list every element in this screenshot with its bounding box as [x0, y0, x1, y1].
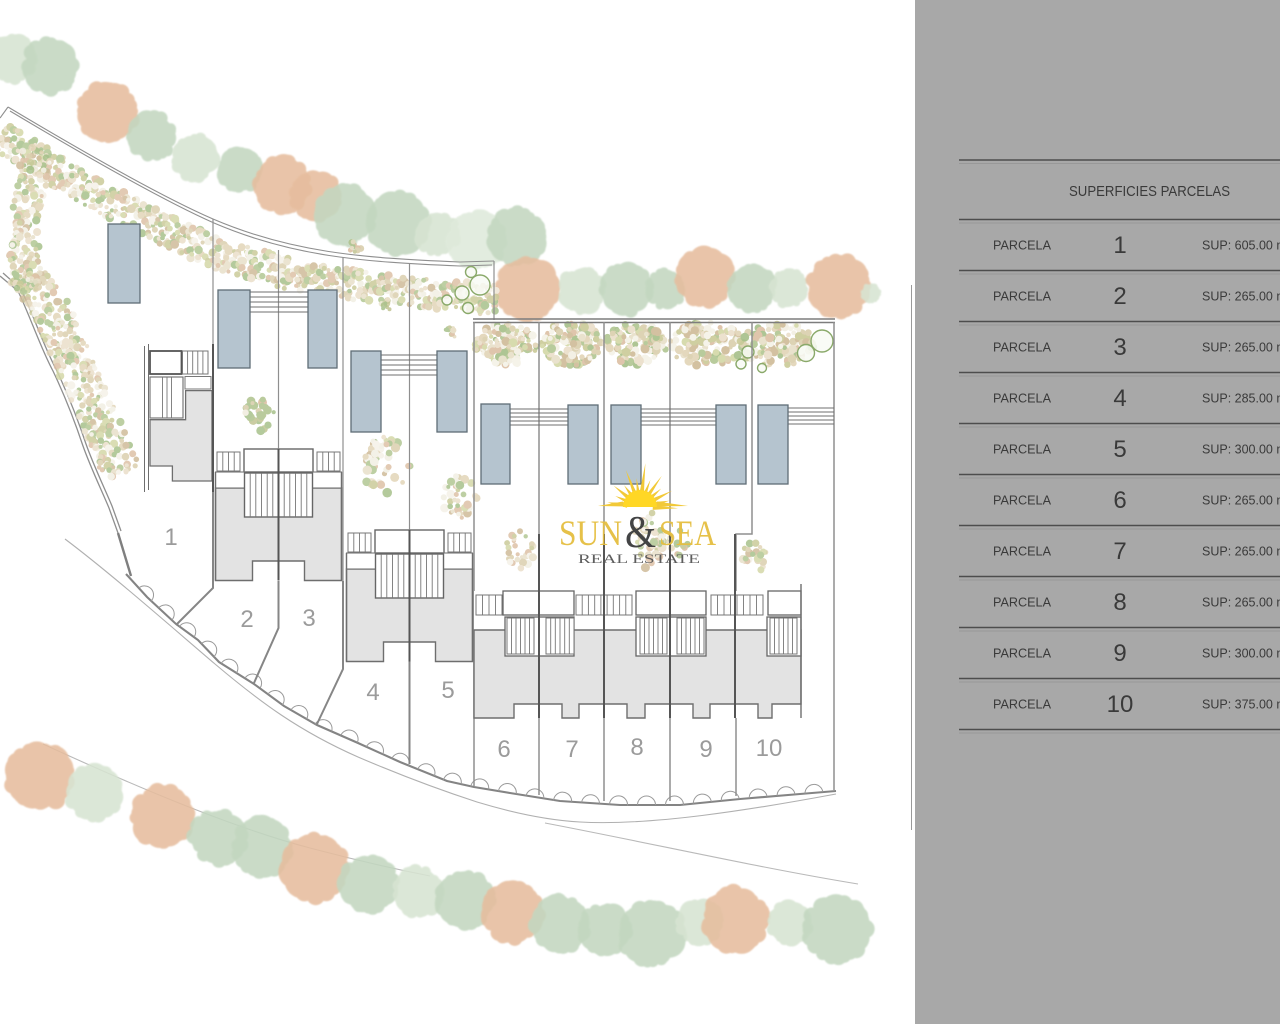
svg-text:7: 7	[1113, 538, 1126, 565]
svg-text:3: 3	[1113, 334, 1126, 361]
svg-text:3: 3	[302, 605, 315, 632]
svg-text:PARCELA: PARCELA	[993, 341, 1052, 355]
svg-text:SEA: SEA	[659, 513, 716, 553]
svg-text:8: 8	[630, 734, 643, 761]
svg-text:SUP: 285.00 m²: SUP: 285.00 m²	[1202, 392, 1280, 406]
svg-text:SUP: 300.00 m²: SUP: 300.00 m²	[1202, 647, 1280, 661]
svg-text:PARCELA: PARCELA	[993, 290, 1052, 304]
svg-text:PARCELA: PARCELA	[993, 545, 1052, 559]
svg-text:6: 6	[497, 736, 510, 763]
svg-text:7: 7	[565, 736, 578, 763]
svg-text:9: 9	[1113, 640, 1126, 667]
svg-text:10: 10	[1107, 691, 1134, 718]
svg-text:SUP: 265.00 m²: SUP: 265.00 m²	[1202, 494, 1280, 508]
svg-text:2: 2	[240, 606, 253, 633]
svg-text:2: 2	[1113, 283, 1126, 310]
svg-text:SUP: 265.00 m²: SUP: 265.00 m²	[1202, 545, 1280, 559]
svg-text:9: 9	[699, 736, 712, 763]
svg-text:5: 5	[441, 677, 454, 704]
svg-text:PARCELA: PARCELA	[993, 392, 1052, 406]
svg-text:4: 4	[366, 679, 379, 706]
svg-text:SUN: SUN	[559, 513, 622, 553]
svg-text:5: 5	[1113, 436, 1126, 463]
svg-text:1: 1	[1113, 232, 1126, 259]
svg-text:PARCELA: PARCELA	[993, 239, 1052, 253]
svg-text:PARCELA: PARCELA	[993, 647, 1052, 661]
svg-text:6: 6	[1113, 487, 1126, 514]
svg-text:&: &	[625, 506, 656, 557]
svg-text:REAL ESTATE: REAL ESTATE	[578, 552, 701, 566]
svg-text:SUP: 265.00 m²: SUP: 265.00 m²	[1202, 290, 1280, 304]
svg-text:PARCELA: PARCELA	[993, 698, 1052, 712]
svg-text:SUP: 605.00 m²: SUP: 605.00 m²	[1202, 239, 1280, 253]
svg-text:10: 10	[756, 735, 783, 762]
svg-text:PARCELA: PARCELA	[993, 596, 1052, 610]
svg-text:4: 4	[1113, 385, 1126, 412]
svg-text:SUP: 300.00 m²: SUP: 300.00 m²	[1202, 443, 1280, 457]
svg-text:1: 1	[164, 524, 177, 551]
svg-text:8: 8	[1113, 589, 1126, 616]
svg-text:SUP: 265.00 m²: SUP: 265.00 m²	[1202, 341, 1280, 355]
svg-text:SUP: 375.00 m²: SUP: 375.00 m²	[1202, 698, 1280, 712]
svg-text:PARCELA: PARCELA	[993, 443, 1052, 457]
svg-text:SUPERFICIES PARCELAS: SUPERFICIES PARCELAS	[1069, 183, 1230, 200]
svg-text:SUP: 265.00 m²: SUP: 265.00 m²	[1202, 596, 1280, 610]
svg-text:PARCELA: PARCELA	[993, 494, 1052, 508]
